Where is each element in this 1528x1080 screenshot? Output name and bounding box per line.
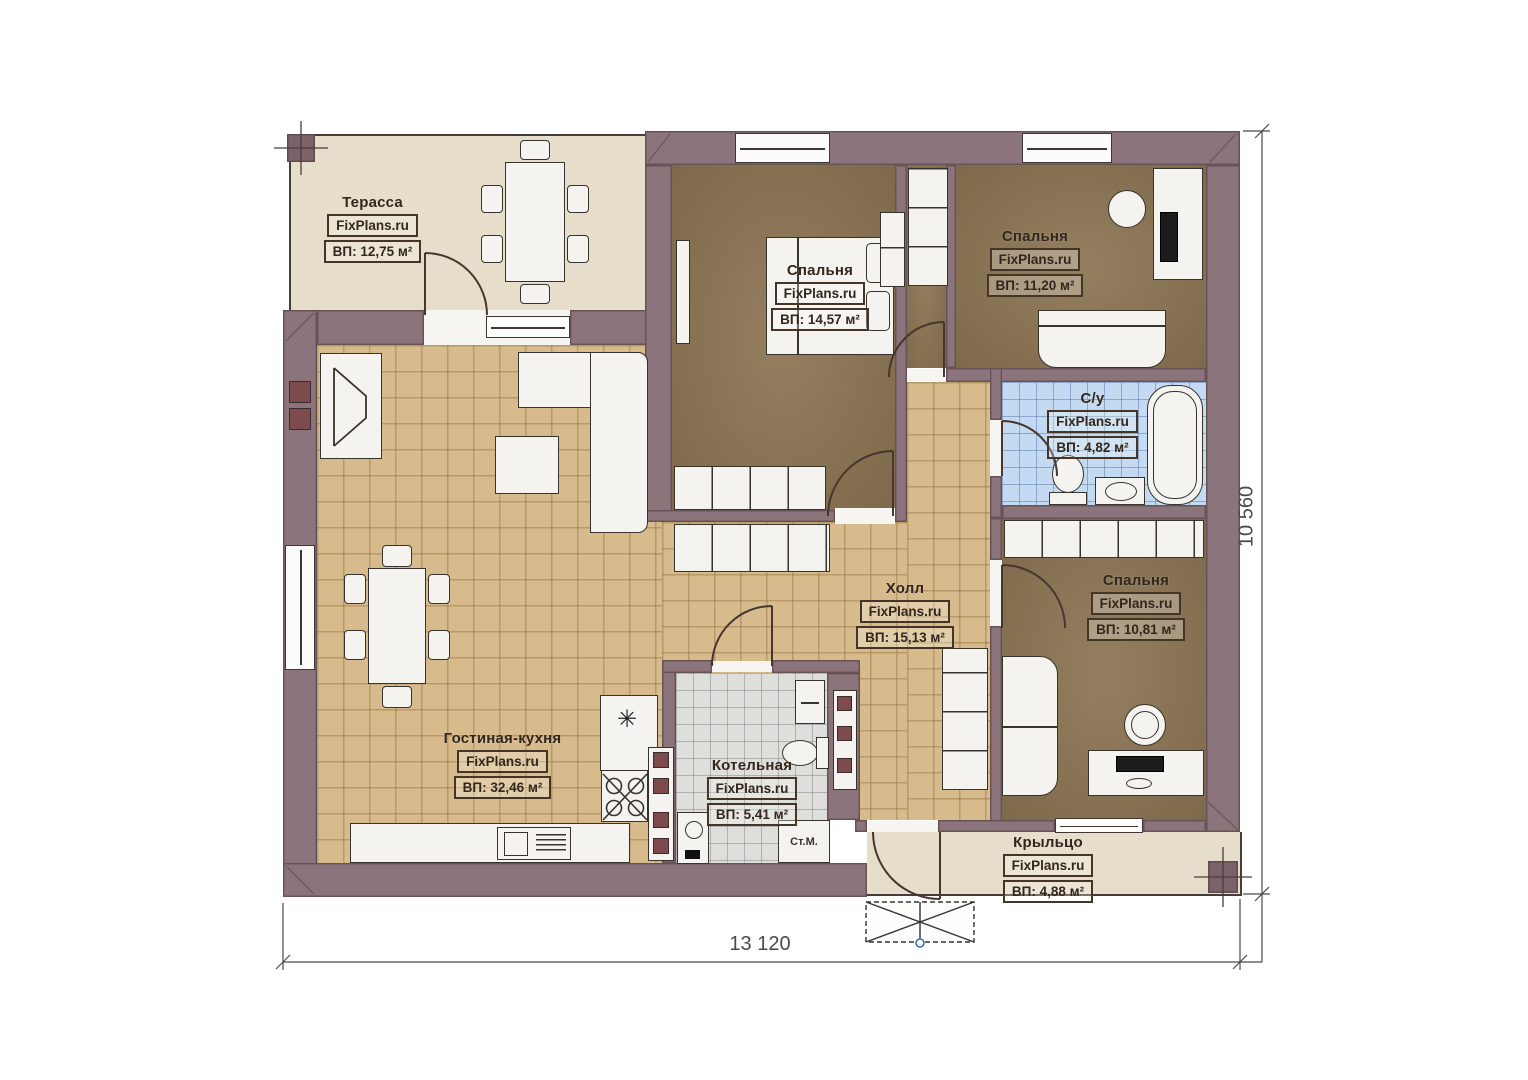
- room-area: ВП: 11,20 м²: [987, 274, 1084, 297]
- room-area: ВП: 5,41 м²: [707, 803, 797, 826]
- hall-cabinet-module: [837, 758, 852, 773]
- wall-bedroom3-left-upper: [990, 518, 1002, 560]
- window-left: [285, 545, 315, 670]
- room-name: Спальня: [787, 262, 853, 279]
- kitchen-counter: [350, 823, 630, 863]
- dining-chair: [382, 686, 412, 708]
- coffee-table: [495, 436, 559, 494]
- wall-bedroom1-left: [645, 165, 672, 520]
- entrance-door-opening: [867, 821, 938, 832]
- dining-chair: [382, 545, 412, 567]
- kitchen-cabinet-module: [653, 838, 669, 854]
- wall-bathroom-bottom: [1002, 505, 1206, 519]
- wall-boiler-top-left: [662, 660, 712, 673]
- boiler-door-opening: [712, 661, 772, 672]
- room-area: ВП: 10,81 м²: [1087, 618, 1185, 641]
- brand-watermark: FixPlans.ru: [327, 214, 418, 237]
- label-bedroom3: Спальня FixPlans.ru ВП: 10,81 м²: [1062, 572, 1210, 641]
- wall-terrace-divider-left: [317, 310, 424, 345]
- label-boiler: Котельная FixPlans.ru ВП: 5,41 м²: [676, 757, 828, 826]
- steps-marker: [916, 939, 924, 947]
- floor-plan-canvas: ✳: [0, 0, 1528, 1080]
- window-porch: [1055, 818, 1143, 833]
- room-area: ВП: 4,82 м²: [1047, 436, 1137, 459]
- room-area: ВП: 14,57 м²: [771, 308, 869, 331]
- toilet: [1052, 455, 1084, 493]
- brand-watermark: FixPlans.ru: [1047, 410, 1138, 433]
- washing-machine-label: Ст.М.: [790, 836, 818, 848]
- kitchen-cabinet-module: [653, 752, 669, 768]
- dining-chair: [428, 574, 450, 604]
- radiator: [676, 240, 690, 344]
- brand-watermark: FixPlans.ru: [990, 248, 1081, 271]
- wall-porch-top-c: [1143, 820, 1206, 832]
- kitchen-cabinet-module: [653, 812, 669, 828]
- room-name: С/у: [1081, 390, 1105, 407]
- label-bedroom1: Спальня FixPlans.ru ВП: 14,57 м²: [745, 262, 895, 331]
- label-terrace: Терасса FixPlans.ru ВП: 12,75 м²: [300, 194, 445, 263]
- hall-cabinet-row: [674, 524, 830, 572]
- bedroom2-sofa: [1038, 310, 1166, 368]
- corner-post-top-left: [287, 134, 315, 162]
- corridor-wardrobe: [908, 168, 948, 286]
- bedroom1-wardrobe-row: [674, 466, 826, 510]
- dimension-height-label: 10 560: [1236, 482, 1259, 552]
- terrace-table: [505, 162, 565, 282]
- brand-watermark: FixPlans.ru: [1003, 854, 1094, 877]
- toilet-tank: [1049, 492, 1087, 505]
- dining-chair: [344, 574, 366, 604]
- computer-monitor: [1160, 212, 1178, 262]
- wall-porch-top-a: [855, 820, 867, 832]
- wall-bottom: [283, 863, 867, 897]
- terrace-door-sidelight: [486, 316, 570, 338]
- wall-bathroom-left-lower: [990, 476, 1002, 518]
- dining-chair: [428, 630, 450, 660]
- label-living-kitchen: Гостиная-кухня FixPlans.ru ВП: 32,46 м²: [420, 730, 585, 799]
- dining-table: [368, 568, 426, 684]
- room-name: Терасса: [342, 194, 403, 211]
- wall-bedroom1-bottom: [645, 510, 835, 522]
- room-area: ВП: 15,13 м²: [856, 626, 954, 649]
- bedroom1-door-opening: [835, 508, 895, 524]
- chimney-flue: [289, 408, 311, 430]
- room-name: Спальня: [1002, 228, 1068, 245]
- terrace-chair: [481, 185, 503, 213]
- hall-bench-column: [942, 648, 988, 790]
- wall-below-bedroom2: [946, 368, 1206, 382]
- label-bathroom: С/у FixPlans.ru ВП: 4,82 м²: [1025, 390, 1160, 459]
- entrance-steps: [866, 902, 974, 947]
- wall-bathroom-left-upper: [990, 368, 1002, 420]
- room-area: ВП: 12,75 м²: [324, 240, 422, 263]
- bedroom3-sofa: [1002, 656, 1058, 796]
- window-top-1: [735, 133, 830, 163]
- room-area: ВП: 32,46 м²: [454, 776, 552, 799]
- room-area: ВП: 4,88 м²: [1003, 880, 1093, 903]
- hall-cabinet-module: [837, 726, 852, 741]
- computer-monitor: [1116, 756, 1164, 772]
- desk-chair: [1108, 190, 1146, 228]
- terrace-chair: [520, 284, 550, 304]
- wall-porch-top-b: [938, 820, 1055, 832]
- corner-post-porch: [1208, 861, 1238, 893]
- brand-watermark: FixPlans.ru: [707, 777, 798, 800]
- room-name: Гостиная-кухня: [444, 730, 562, 747]
- kitchen-vent-icon: ✳: [617, 705, 637, 734]
- brand-watermark: FixPlans.ru: [1091, 592, 1182, 615]
- corner-sofa-right: [590, 352, 648, 533]
- wall-terrace-divider-right: [570, 310, 657, 345]
- fireplace: [320, 353, 382, 459]
- label-hall: Холл FixPlans.ru ВП: 15,13 м²: [830, 580, 980, 649]
- bedroom3-door-opening: [990, 560, 1002, 626]
- kitchen-oven: [497, 827, 571, 860]
- terrace-chair: [567, 185, 589, 213]
- bathroom-door-opening: [990, 420, 1002, 476]
- hall-cabinet-module: [837, 696, 852, 711]
- terrace-chair: [481, 235, 503, 263]
- brand-watermark: FixPlans.ru: [775, 282, 866, 305]
- terrace-chair: [520, 140, 550, 160]
- planter: [1124, 704, 1166, 746]
- terrace-chair: [567, 235, 589, 263]
- room-name: Спальня: [1103, 572, 1169, 589]
- wall-bedroom3-left-lower: [990, 626, 1002, 832]
- bathroom-sink: [1095, 477, 1145, 505]
- boiler-cabinet: [795, 680, 825, 724]
- dining-chair: [344, 630, 366, 660]
- mouse: [1126, 778, 1152, 789]
- kitchen-cabinet-module: [653, 778, 669, 794]
- room-name: Холл: [886, 580, 924, 597]
- dimension-width-label: 13 120: [690, 933, 830, 956]
- label-bedroom2: Спальня FixPlans.ru ВП: 11,20 м²: [960, 228, 1110, 297]
- bedroom3-wardrobe-row: [1004, 520, 1204, 558]
- kitchen-stove: [601, 770, 648, 822]
- chimney-flue: [289, 381, 311, 403]
- window-top-2: [1022, 133, 1112, 163]
- wall-boiler-top-right: [772, 660, 860, 673]
- brand-watermark: FixPlans.ru: [860, 600, 951, 623]
- corridor-door-opening: [907, 369, 944, 381]
- label-porch: Крыльцо FixPlans.ru ВП: 4,88 м²: [972, 834, 1124, 903]
- room-name: Крыльцо: [1013, 834, 1083, 851]
- washing-machine: Ст.М.: [778, 820, 830, 863]
- brand-watermark: FixPlans.ru: [457, 750, 548, 773]
- room-name: Котельная: [712, 757, 792, 774]
